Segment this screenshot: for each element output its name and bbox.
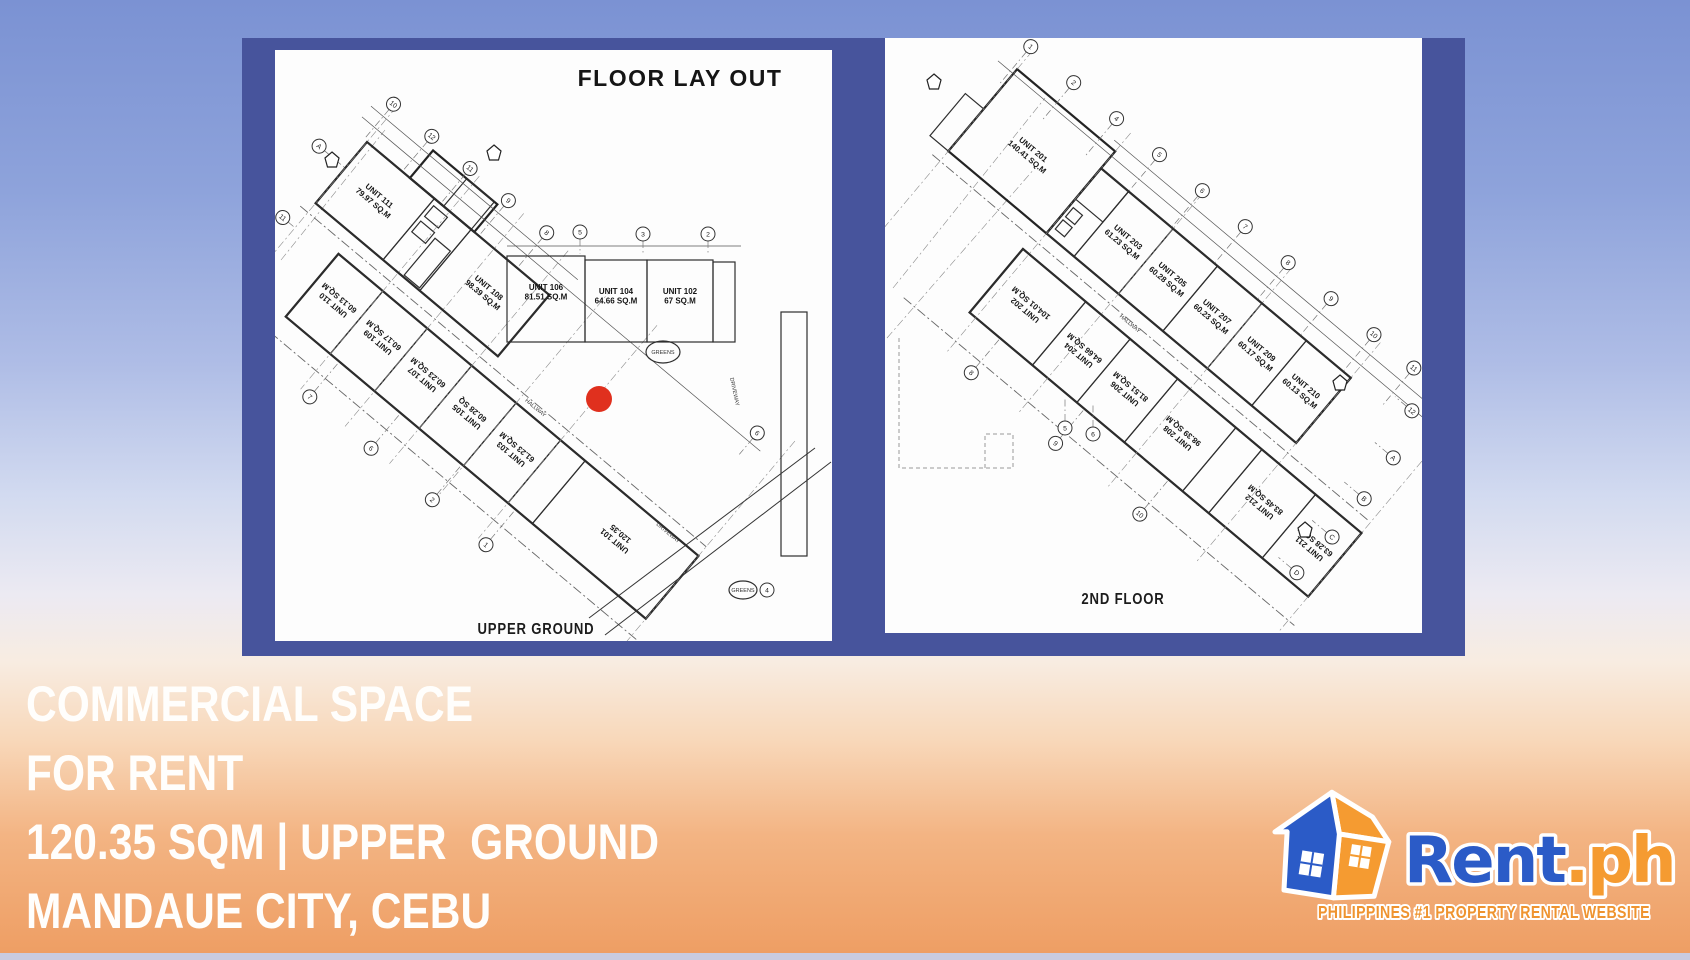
bottom-edge-strip <box>0 953 1690 960</box>
section-marker <box>927 74 941 89</box>
unit-label: UNIT 10267 SQ.M <box>663 287 698 306</box>
floorplan-2nd-floor-drawing: HALLWAY UNIT 201140.41 SQ.M UNIT 20361.2… <box>885 38 1422 633</box>
driveway-label: DRIVEWAY <box>655 522 681 545</box>
unit-label: UNIT 10681.51 SQ.M <box>525 283 568 302</box>
grid-leader-line <box>1383 373 1409 404</box>
svg-text:2ND FLOOR: 2ND FLOOR <box>1081 591 1164 608</box>
grid-leader-line <box>1278 557 1291 568</box>
grid-leader-line <box>517 238 542 268</box>
unit-label: UNIT 20464.66 SQ.M <box>1059 330 1104 372</box>
window-icon <box>1349 844 1372 869</box>
section-marker <box>1298 522 1312 537</box>
headline-line-4: MANDAUE CITY, CEBU <box>26 877 659 946</box>
unit-label: UNIT 21163.28 SQ.M <box>1290 524 1335 566</box>
trellis-walkway <box>781 312 807 556</box>
unit-rooms <box>275 114 788 618</box>
grid-bubble-number: 6 <box>1091 431 1095 438</box>
unit-label: UNIT 20361.23 SQ.M <box>1103 220 1148 262</box>
grid-and-dimension-lines <box>885 38 1422 633</box>
grid-leader-line <box>739 438 752 454</box>
grid-bubble-number: 3 <box>641 231 645 238</box>
greens-label: GREENS <box>651 350 675 356</box>
grid-leader-line <box>1129 160 1155 191</box>
stairs <box>1075 168 1128 222</box>
unit-label: UNIT 11060.13 SQ.M <box>314 280 359 322</box>
location-marker-dot <box>586 386 612 412</box>
greens-label: GREENS <box>731 588 755 594</box>
grid-leader-line <box>402 142 427 172</box>
unit-label: UNIT 10464.66 SQ.M <box>595 287 638 306</box>
grid-leader-line <box>364 110 389 140</box>
floorplan-upper-ground-drawing: FLOOR LAY OUT <box>275 50 832 641</box>
unit-label: UNIT 20760.23 SQ.M <box>1192 295 1237 337</box>
plan-caption: UPPER GROUND <box>478 621 595 638</box>
unit-label: UNIT 20960.17 SQ.M <box>1236 332 1281 374</box>
house-icon <box>1266 784 1395 905</box>
window-icon <box>1299 850 1324 877</box>
grid-bubble-number: 4 <box>765 587 769 594</box>
unit-label: UNIT 11179.97 SQ.M <box>354 179 399 221</box>
grid-leader-line <box>1172 196 1198 227</box>
unit-row-horizontal: UNIT 10681.51 SQ.M UNIT 10464.66 SQ.M UN… <box>507 246 741 342</box>
strip-outlines <box>275 114 788 618</box>
rentph-logo: Rent.ph PHILIPPINES #1 PROPERTY RENTAL W… <box>1236 778 1690 948</box>
grid-bubbles: 12456789101112ABCD8910 <box>885 38 1422 628</box>
building-strip: HALLWAY UNIT 201140.41 SQ.M UNIT 20361.2… <box>885 38 1422 633</box>
unit-label: UNIT 21060.13 SQ.M <box>1280 369 1325 411</box>
unit-label: UNIT 20681.51 SQ.M <box>1105 369 1150 411</box>
poster: FLOOR LAY OUT <box>0 0 1690 960</box>
unit-label: UNIT 202104.01 SQ.M <box>1004 284 1052 329</box>
unit-label: UNIT 10560.28 SQ <box>450 395 489 432</box>
site-gridline <box>887 168 1035 338</box>
plan-caption: 2ND FLOOR <box>1081 591 1164 608</box>
grid-leader-line <box>437 464 462 494</box>
section-marker <box>487 145 501 160</box>
headline-line-1: COMMERCIAL SPACE <box>26 670 659 739</box>
unit-label: UNIT 21283.45 SQ.M <box>1240 482 1285 524</box>
grid-leader-line <box>1144 480 1168 509</box>
grid-leader-line <box>1214 232 1240 263</box>
unit-label: UNIT 10760.23 SQ.M <box>403 355 448 397</box>
brand-tagline: PHILIPPINES #1 PROPERTY RENTAL WEBSITE <box>1318 902 1650 922</box>
listing-headline: COMMERCIAL SPACE FOR RENT 120.35 SQM | U… <box>26 670 771 946</box>
grid-leader-line <box>1395 397 1406 407</box>
grid-leader-line <box>1300 304 1326 335</box>
unit-label: UNIT 101120.35 <box>598 519 637 556</box>
grid-leader-line <box>1257 268 1283 299</box>
section-marker <box>325 152 339 167</box>
grid-leader-line <box>288 222 295 228</box>
section-marker <box>1333 375 1347 390</box>
unit-label: UNIT 20560.28 SQ.M <box>1147 257 1192 299</box>
headline-line-2: FOR RENT <box>26 739 659 808</box>
grid-leader-line <box>976 338 1000 367</box>
svg-text:UPPER GROUND: UPPER GROUND <box>478 621 595 638</box>
plan-title: FLOOR LAY OUT <box>578 65 783 91</box>
unit-label: UNIT 20898.39 SQ.M <box>1158 413 1203 455</box>
grid-leader-line <box>441 174 466 204</box>
grid-bubble-number: 5 <box>578 229 582 236</box>
unit-label: UNIT 10361.23 SQ.M <box>492 429 537 471</box>
headline-line-3: 120.35 SQM | UPPER GROUND <box>26 808 659 877</box>
unit-label: UNIT 10960.17 SQ.M <box>358 318 403 360</box>
grid-bubble-number: 5 <box>1063 425 1067 432</box>
unit-rooms <box>885 71 1422 597</box>
grid-leader-line <box>1344 482 1359 494</box>
grid-leader-line <box>1343 340 1369 371</box>
strip-outlines <box>885 69 1422 596</box>
grid-leader-line <box>1312 520 1327 532</box>
building-strip: HALLWAY UNIT 11179.97 SQ.M UNIT 10898.39… <box>275 75 807 641</box>
terrace-outline <box>899 338 1013 468</box>
driveway-label: DRIVEWAY <box>728 377 740 407</box>
grid-bubble-number: 2 <box>706 231 710 238</box>
hallway-label: HALLWAY <box>524 398 547 419</box>
grid-leader-line <box>1000 52 1026 83</box>
floorplan-upper-ground: FLOOR LAY OUT <box>275 50 832 641</box>
grid-and-dimension-lines <box>275 94 803 641</box>
grid-leader-line <box>1375 442 1388 453</box>
brand-wordmark: Rent.ph <box>1404 824 1675 898</box>
floorplan-2nd-floor: HALLWAY UNIT 201140.41 SQ.M UNIT 20361.2… <box>885 38 1422 633</box>
